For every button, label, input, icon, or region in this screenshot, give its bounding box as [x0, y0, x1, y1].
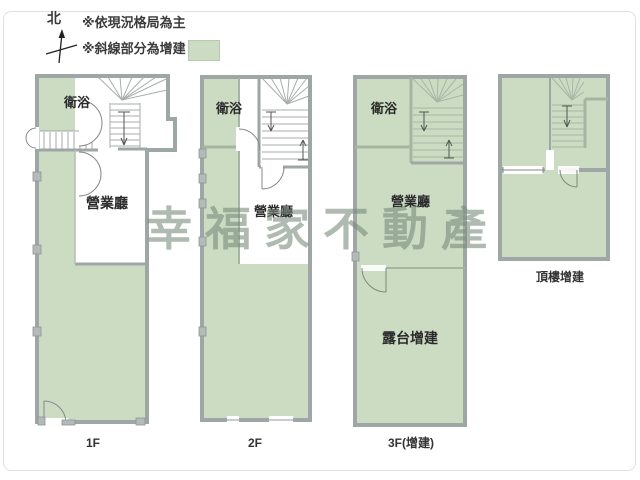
room-label-bath-2f: 衛浴	[216, 102, 242, 115]
room-label-hall-1f: 營業廳	[86, 196, 128, 210]
compass-north-label: 北	[47, 11, 61, 25]
legend-note-layout: ※依現況格局為主	[82, 16, 186, 29]
floor-label-1f: 1F	[71, 437, 115, 449]
floor-label-3f: 3F(增建)	[369, 437, 453, 449]
legend-addition-swatch	[188, 40, 220, 61]
floorplan-image: 北 ※依現況格局為主 ※斜線部分為增建 幸福家不動產 衛浴 營業廳 1F 衛浴 …	[0, 0, 640, 480]
watermark: 幸福家不動產	[146, 206, 500, 252]
legend-note-addition: ※斜線部分為增建	[82, 42, 186, 55]
room-label-bath-1f: 衛浴	[64, 96, 90, 109]
floorplan-rooftop	[500, 76, 608, 259]
floor-label-rooftop: 頂樓增建	[512, 271, 608, 283]
compass-icon	[46, 29, 77, 63]
floor-label-2f: 2F	[233, 437, 277, 449]
room-label-bath-3f: 衛浴	[371, 102, 397, 115]
stair-arrow-icon	[266, 112, 308, 160]
room-label-terrace-3f: 露台增建	[382, 331, 438, 345]
